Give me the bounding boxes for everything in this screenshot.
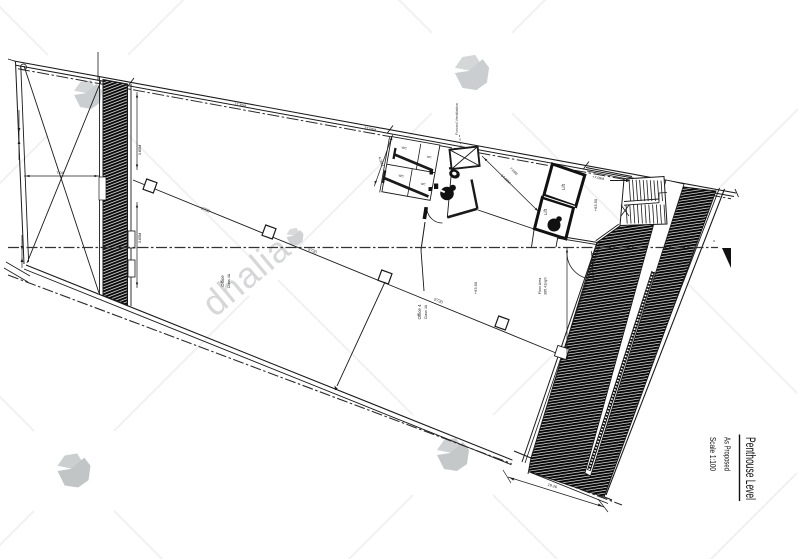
svg-text:Office 4: Office 4 — [417, 304, 422, 320]
svg-text:Scale 1:100: Scale 1:100 — [708, 437, 718, 471]
svg-text:x: x — [713, 238, 715, 243]
svg-text:Forced Ventilation: Forced Ventilation — [454, 103, 459, 135]
svg-text:Floor Area: Floor Area — [538, 278, 542, 295]
svg-text:+63.50: +63.50 — [593, 198, 598, 211]
svg-text:As Proposed: As Proposed — [723, 437, 733, 471]
svg-text:3.85M: 3.85M — [138, 145, 142, 156]
svg-text:Class 4A: Class 4A — [424, 304, 428, 319]
svg-text:385.41sqm: 385.41sqm — [544, 277, 548, 295]
svg-text:Lift: Lift — [561, 183, 566, 190]
svg-text:Office: Office — [220, 275, 225, 287]
svg-text:Lift: Lift — [543, 208, 548, 215]
svg-text:+63.90: +63.90 — [473, 281, 478, 294]
svg-text:Penthouse Level: Penthouse Level — [743, 437, 759, 500]
svg-text:3.85M: 3.85M — [138, 233, 142, 244]
svg-text:7.04: 7.04 — [56, 171, 63, 175]
svg-text:Class 4A: Class 4A — [227, 273, 231, 288]
